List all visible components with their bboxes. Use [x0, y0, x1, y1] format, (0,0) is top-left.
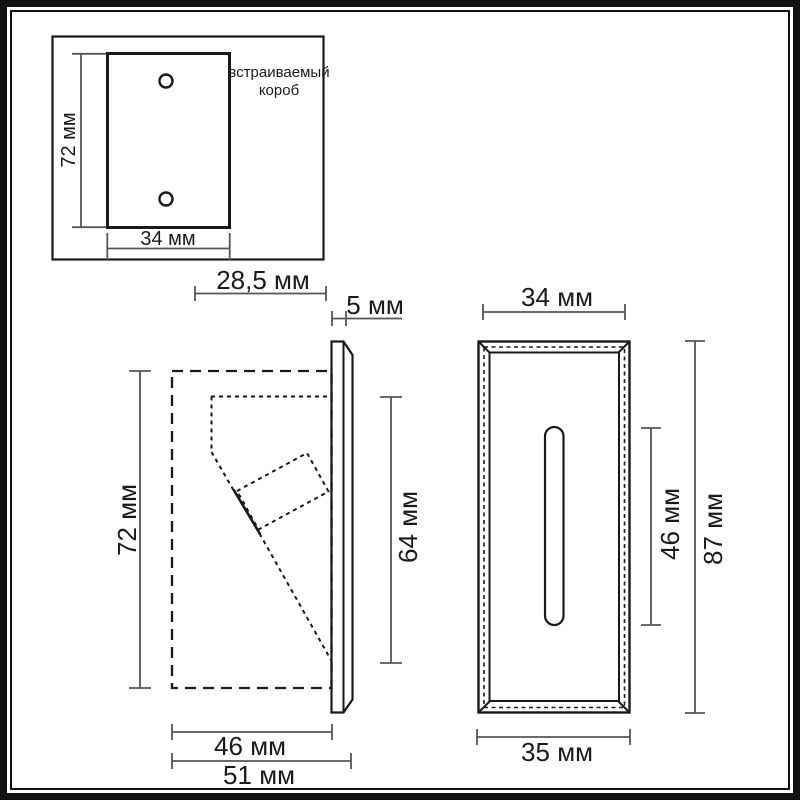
inset-height-dimension-label: 72 мм — [58, 112, 80, 167]
front-slot-height-dimension-label: 46 мм — [655, 488, 685, 560]
drawing-page: 72 мм 34 мм встраиваемый короб 28,5 мм 5… — [0, 0, 800, 800]
side-inner-height-dimension-label: 64 мм — [393, 491, 423, 563]
side-body-depth-label: 46 мм — [214, 731, 286, 761]
dimension-drawing: 72 мм 34 мм встраиваемый короб 28,5 мм 5… — [0, 0, 800, 800]
faceplate-profile — [332, 342, 353, 713]
front-width-dimension-label: 34 мм — [521, 282, 593, 312]
side-recess-depth-label: 28,5 мм — [216, 265, 310, 295]
side-total-depth-label: 51 мм — [223, 760, 295, 790]
inset-width-dimension-label: 34 мм — [140, 228, 195, 250]
mounting-box-outline — [108, 54, 230, 228]
side-height-dimension-label: 72 мм — [112, 484, 142, 556]
inset-caption-line2: короб — [259, 82, 299, 99]
inset-caption-line1: встраиваемый — [228, 64, 329, 81]
front-height-dimension-label: 87 мм — [698, 493, 728, 565]
side-plate-thickness-label: 5 мм — [346, 290, 403, 320]
front-bottom-width-label: 35 мм — [521, 737, 593, 767]
light-slot — [545, 427, 564, 625]
